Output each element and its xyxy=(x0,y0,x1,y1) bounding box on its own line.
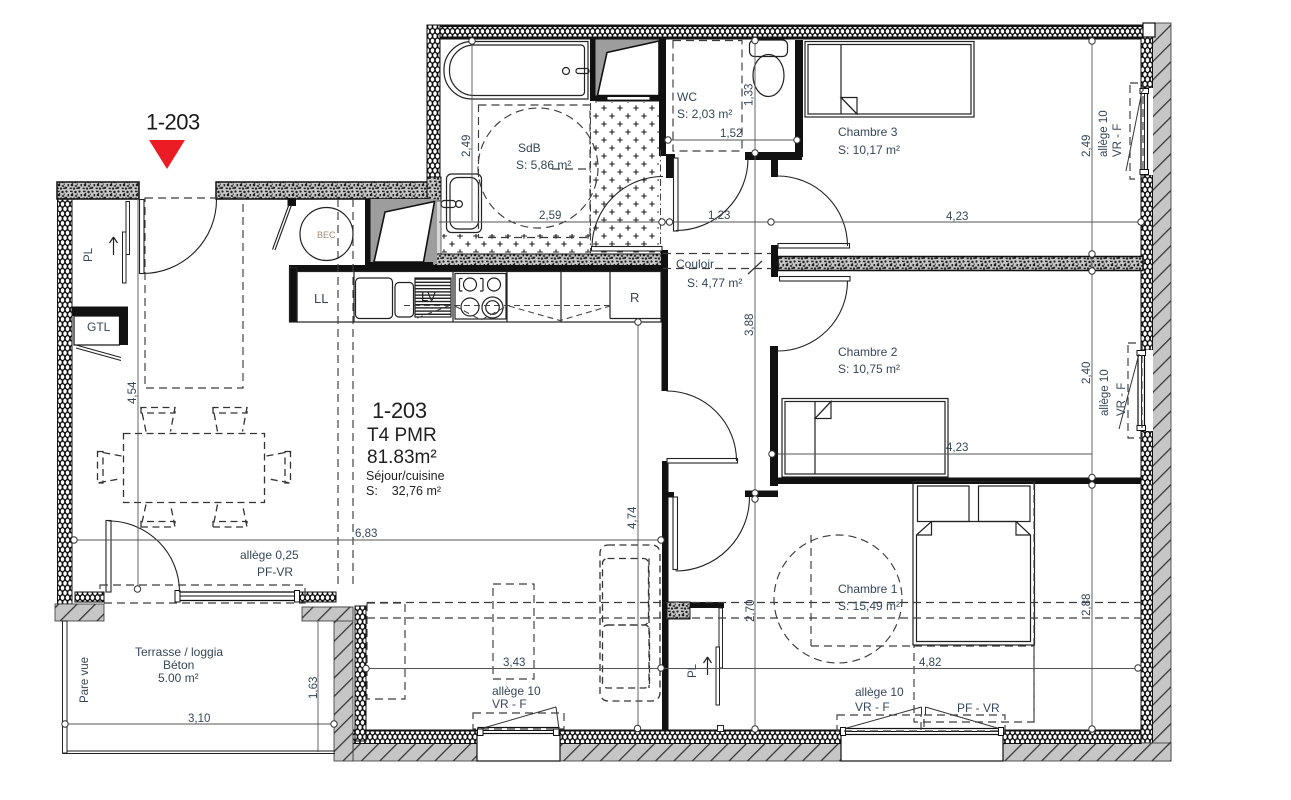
svg-text:allège 0,25: allège 0,25 xyxy=(240,548,299,562)
svg-text:Chambre 3: Chambre 3 xyxy=(838,125,898,139)
svg-text:S: 5,86 m²: S: 5,86 m² xyxy=(516,158,571,172)
svg-text:LL: LL xyxy=(314,291,328,306)
svg-text:4,54: 4,54 xyxy=(127,381,139,404)
svg-text:4,23: 4,23 xyxy=(946,442,968,454)
svg-text:PF - VR: PF - VR xyxy=(957,701,1000,715)
svg-text:1,23: 1,23 xyxy=(708,210,730,222)
svg-text:SdB: SdB xyxy=(518,141,541,155)
svg-text:S: 32,76 m²: S: 32,76 m² xyxy=(366,484,441,498)
svg-text:BEC: BEC xyxy=(317,230,336,240)
svg-text:4,82: 4,82 xyxy=(919,657,941,669)
svg-text:allège 10: allège 10 xyxy=(855,685,904,699)
svg-text:S: 2,03 m²: S: 2,03 m² xyxy=(677,107,732,121)
svg-text:PL: PL xyxy=(687,663,699,678)
svg-text:VR - F: VR - F xyxy=(492,697,527,711)
svg-text:1,52: 1,52 xyxy=(720,128,742,140)
svg-text:S: 10,17 m²: S: 10,17 m² xyxy=(838,143,900,157)
svg-text:5.00 m²: 5.00 m² xyxy=(158,671,199,685)
svg-text:VR - F: VR - F xyxy=(1112,124,1124,157)
svg-text:Terrasse / loggia: Terrasse / loggia xyxy=(135,645,223,659)
svg-text:1,63: 1,63 xyxy=(308,677,320,699)
svg-text:LV: LV xyxy=(421,289,436,304)
svg-text:R: R xyxy=(630,290,639,305)
svg-text:Chambre 1: Chambre 1 xyxy=(838,582,898,596)
svg-text:allège 10: allège 10 xyxy=(492,684,541,698)
svg-text:3,10: 3,10 xyxy=(188,713,210,725)
svg-text:2,49: 2,49 xyxy=(1081,135,1093,157)
svg-text:1-203: 1-203 xyxy=(146,110,200,135)
svg-text:81.83m²: 81.83m² xyxy=(367,447,437,468)
svg-text:PF-VR: PF-VR xyxy=(257,565,293,579)
svg-text:2,59: 2,59 xyxy=(539,210,561,222)
svg-text:2,88: 2,88 xyxy=(1081,594,1093,616)
svg-text:4,23: 4,23 xyxy=(946,211,968,223)
svg-text:PL: PL xyxy=(83,247,95,262)
svg-text:2,49: 2,49 xyxy=(461,135,473,157)
svg-text:WC: WC xyxy=(677,90,697,104)
svg-text:Couloir: Couloir xyxy=(676,257,714,271)
svg-text:4,74: 4,74 xyxy=(627,506,639,529)
svg-text:2,40: 2,40 xyxy=(1081,362,1093,384)
svg-text:Séjour/cuisine: Séjour/cuisine xyxy=(366,469,445,483)
svg-text:3,43: 3,43 xyxy=(503,657,525,669)
svg-text:allège 10: allège 10 xyxy=(1099,369,1111,416)
svg-text:3,88: 3,88 xyxy=(744,314,756,336)
svg-text:2,70: 2,70 xyxy=(745,600,757,622)
svg-text:6,83: 6,83 xyxy=(355,528,377,540)
svg-text:VR - F: VR - F xyxy=(1116,383,1128,416)
svg-text:S: 10,75 m²: S: 10,75 m² xyxy=(838,362,900,376)
svg-text:allège 10: allège 10 xyxy=(1098,110,1110,157)
svg-text:Béton: Béton xyxy=(163,658,194,672)
svg-text:1,33: 1,33 xyxy=(744,84,756,106)
svg-text:T4 PMR: T4 PMR xyxy=(367,425,437,446)
svg-text:VR - F: VR - F xyxy=(855,700,890,714)
svg-text:S: 4,77 m²: S: 4,77 m² xyxy=(687,276,742,290)
svg-text:Chambre 2: Chambre 2 xyxy=(838,345,898,359)
svg-text:1-203: 1-203 xyxy=(372,398,427,423)
svg-text:S: 15,49 m²: S: 15,49 m² xyxy=(838,599,900,613)
svg-text:GTL: GTL xyxy=(87,320,111,334)
svg-text:Pare vue: Pare vue xyxy=(79,657,91,703)
